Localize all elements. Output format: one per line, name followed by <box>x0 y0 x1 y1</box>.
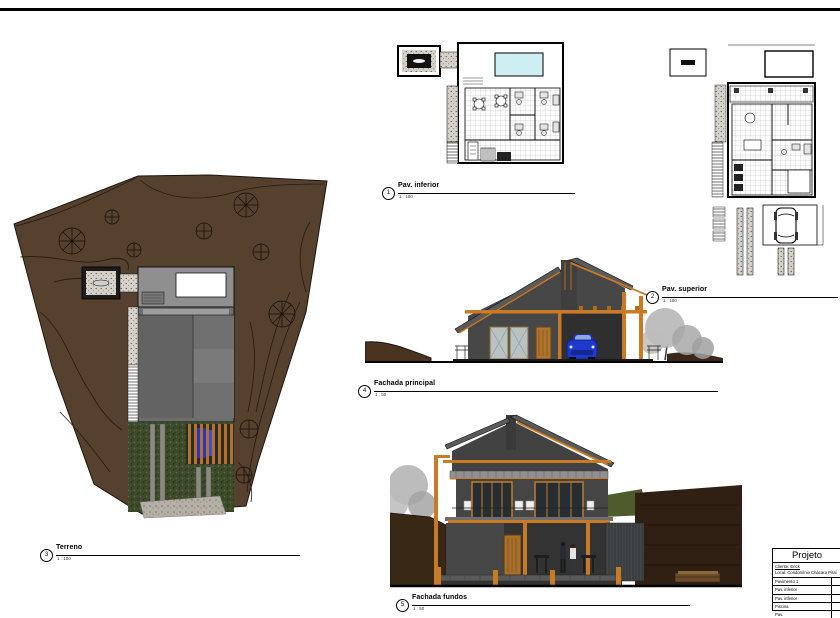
collar-beam <box>443 460 611 463</box>
title-block-header: Projeto <box>773 549 840 563</box>
bed <box>788 170 810 193</box>
location-line: Local: Condomínio Chácara Piraí <box>775 570 839 576</box>
lower-wall <box>446 523 504 577</box>
callout-fachada-fundos: 5 Fachada fundos 1 : 50 <box>396 586 690 606</box>
view-scale: 1 : 50 <box>375 392 386 397</box>
view-title: Pav. superior <box>662 286 707 293</box>
view-scale: 1 : 100 <box>57 556 71 561</box>
view-scale: 1 : 50 <box>413 606 424 611</box>
side-steps <box>712 142 723 197</box>
view-title: Fachada fundos <box>412 594 467 601</box>
pav-inferior-plan <box>395 40 580 180</box>
title-block-info: Cliente: Erick Local: Condomínio Chácara… <box>773 563 840 578</box>
awning <box>450 471 608 480</box>
sheet-top-border <box>0 8 840 11</box>
annex-tub <box>93 280 109 286</box>
callout-pav-superior: 2 Pav. superior 1 : 100 <box>646 278 838 298</box>
callout-fachada-principal: 4 Fachada principal 1 : 50 <box>358 372 718 392</box>
client-line: Cliente: Erick <box>775 564 800 570</box>
round-table <box>745 113 755 123</box>
side-steps <box>447 142 458 163</box>
corrugated-wall-right <box>606 523 644 581</box>
view-scale: 1 : 100 <box>663 298 677 303</box>
terreno-site-plan <box>10 162 330 537</box>
view-scale: 1 : 100 <box>399 194 413 199</box>
roof-skylight <box>176 273 226 297</box>
terrain-left <box>365 342 431 362</box>
side-path <box>447 86 458 142</box>
terrain-right <box>635 485 742 586</box>
wood-pile <box>675 571 720 582</box>
path-connector <box>120 274 138 292</box>
timber-post-left <box>434 455 438 585</box>
view-title: Terreno <box>56 544 82 551</box>
title-block-row: Pav. inferior <box>773 595 840 603</box>
pav-superior-plan <box>660 40 840 280</box>
lower-door <box>504 535 521 575</box>
upper-window-right <box>533 482 585 520</box>
timber-beam <box>465 310 647 314</box>
pergola-carport <box>186 424 234 464</box>
grill-block <box>497 152 511 161</box>
house-roof-plan <box>138 267 234 422</box>
view-number-badge: 3 <box>40 549 53 562</box>
title-block: Projeto Cliente: Erick Local: Condomínio… <box>772 548 840 611</box>
gable-wall <box>452 423 608 473</box>
floor-beam <box>448 520 610 523</box>
lower-steps-stack <box>713 207 725 241</box>
fachada-fundos-elevation <box>390 405 742 592</box>
stairs <box>481 148 495 161</box>
dining-table <box>744 140 761 150</box>
counter <box>468 142 478 160</box>
view-title: Pav. inferior <box>398 182 439 189</box>
trees-right <box>640 308 714 360</box>
upper-window-left <box>470 482 514 520</box>
side-path <box>715 85 726 142</box>
porch-post-2 <box>586 523 590 577</box>
pool <box>495 53 543 76</box>
upper-deck <box>765 51 813 77</box>
connector-path <box>440 52 458 68</box>
entry-door <box>536 327 551 359</box>
clerestory-wall <box>561 260 577 314</box>
title-block-row: Pav. inferior <box>773 586 840 594</box>
porch-post-1 <box>523 523 527 577</box>
view-number-badge: 4 <box>358 385 371 398</box>
view-title: Fachada principal <box>374 380 435 387</box>
title-block-row: Pav. <box>773 611 840 618</box>
stone-path <box>128 307 138 365</box>
view-number-badge: 1 <box>382 187 395 200</box>
deck-base <box>438 575 622 586</box>
fachada-principal-elevation <box>365 250 723 372</box>
dim-line-right <box>817 205 823 245</box>
callout-terreno: 3 Terreno 1 : 100 <box>40 536 300 556</box>
view-number-badge: 5 <box>396 599 409 612</box>
railing-left <box>455 346 468 360</box>
view-number-badge: 2 <box>646 291 659 304</box>
car-plan <box>774 208 798 243</box>
title-block-row: Pavimento 1 <box>773 578 840 586</box>
callout-pav-inferior: 1 Pav. inferior 1 : 100 <box>382 174 575 194</box>
site-steps <box>128 365 138 422</box>
kitchen-appliances <box>734 164 743 191</box>
